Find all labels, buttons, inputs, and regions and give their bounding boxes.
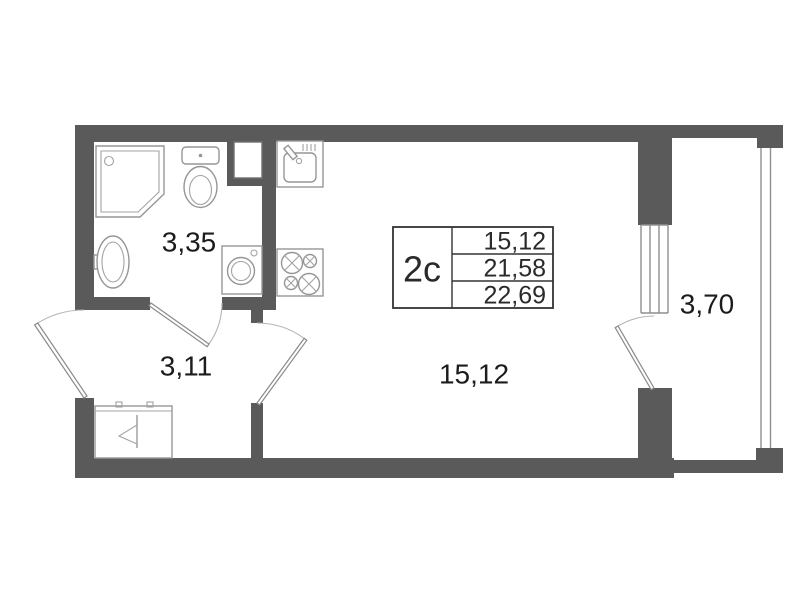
room-label-living-room: 15,12 bbox=[439, 359, 509, 390]
wall-bath-bottom-left bbox=[75, 297, 150, 310]
duct-shaft-icon bbox=[234, 142, 262, 178]
wall-balcony-pillar-top bbox=[638, 138, 672, 225]
door-arc bbox=[257, 323, 304, 338]
entrance-door-swing-icon bbox=[35, 310, 87, 398]
unit-area-living: 15,12 bbox=[483, 228, 546, 256]
living-room-door-swing-icon bbox=[257, 323, 307, 405]
bathroom-door-swing-icon bbox=[149, 303, 222, 347]
door-leaf bbox=[615, 326, 654, 390]
kitchen-sink-icon bbox=[277, 141, 323, 187]
wall-stub-hall-bottom bbox=[251, 403, 263, 458]
duct-shaft-interior bbox=[234, 142, 262, 178]
wall-bath-bottom-right bbox=[222, 297, 276, 310]
window-icon bbox=[641, 225, 668, 313]
unit-info-box: 2c 15,12 21,58 22,69 bbox=[393, 227, 553, 310]
stove-icon bbox=[277, 249, 323, 296]
wall-stub-hall-top bbox=[251, 310, 263, 323]
wall-kitchen-vertical bbox=[262, 137, 276, 297]
shower-outer bbox=[96, 146, 164, 217]
balcony-railing-icon bbox=[761, 148, 771, 448]
wall-bottom-main bbox=[75, 458, 674, 478]
wall-top-balcony bbox=[655, 125, 760, 138]
unit-type-label: 2c bbox=[403, 249, 441, 290]
washbasin-icon bbox=[94, 236, 129, 288]
wardrobe-icon bbox=[95, 402, 172, 458]
wall-bottom-balcony bbox=[674, 460, 760, 473]
wall-niche-bottom bbox=[227, 178, 262, 186]
floor-plan-page: 2c 15,12 21,58 22,69 3,35 3,11 15,12 3,7… bbox=[0, 0, 799, 600]
door-arc bbox=[618, 316, 654, 326]
unit-area-total-with-balcony: 22,69 bbox=[483, 282, 546, 310]
floor-plan-drawing: 2c 15,12 21,58 22,69 3,35 3,11 15,12 3,7… bbox=[0, 0, 799, 600]
room-label-bathroom: 3,35 bbox=[162, 227, 217, 258]
door-arc bbox=[209, 303, 222, 344]
balcony-door-swing-icon bbox=[615, 316, 654, 390]
door-leaf bbox=[35, 323, 87, 398]
wall-top-main bbox=[75, 125, 660, 142]
room-label-hallway: 3,11 bbox=[160, 351, 212, 382]
shower-icon bbox=[96, 146, 164, 217]
room-label-balcony: 3,70 bbox=[680, 289, 735, 320]
door-arc bbox=[35, 310, 84, 325]
wall-block-bottom-right bbox=[756, 448, 783, 473]
toilet-bowl bbox=[184, 167, 217, 208]
toilet-button bbox=[199, 154, 203, 158]
door-leaf bbox=[257, 338, 307, 405]
washing-machine-icon bbox=[222, 246, 262, 294]
wall-block-top-right bbox=[757, 125, 783, 148]
wardrobe-body bbox=[95, 406, 172, 458]
wall-left-upper bbox=[75, 125, 94, 310]
toilet-icon bbox=[182, 147, 219, 208]
door-leaf bbox=[149, 303, 209, 347]
unit-area-total: 21,58 bbox=[483, 255, 546, 283]
wall-balcony-pillar-bottom bbox=[638, 388, 672, 460]
